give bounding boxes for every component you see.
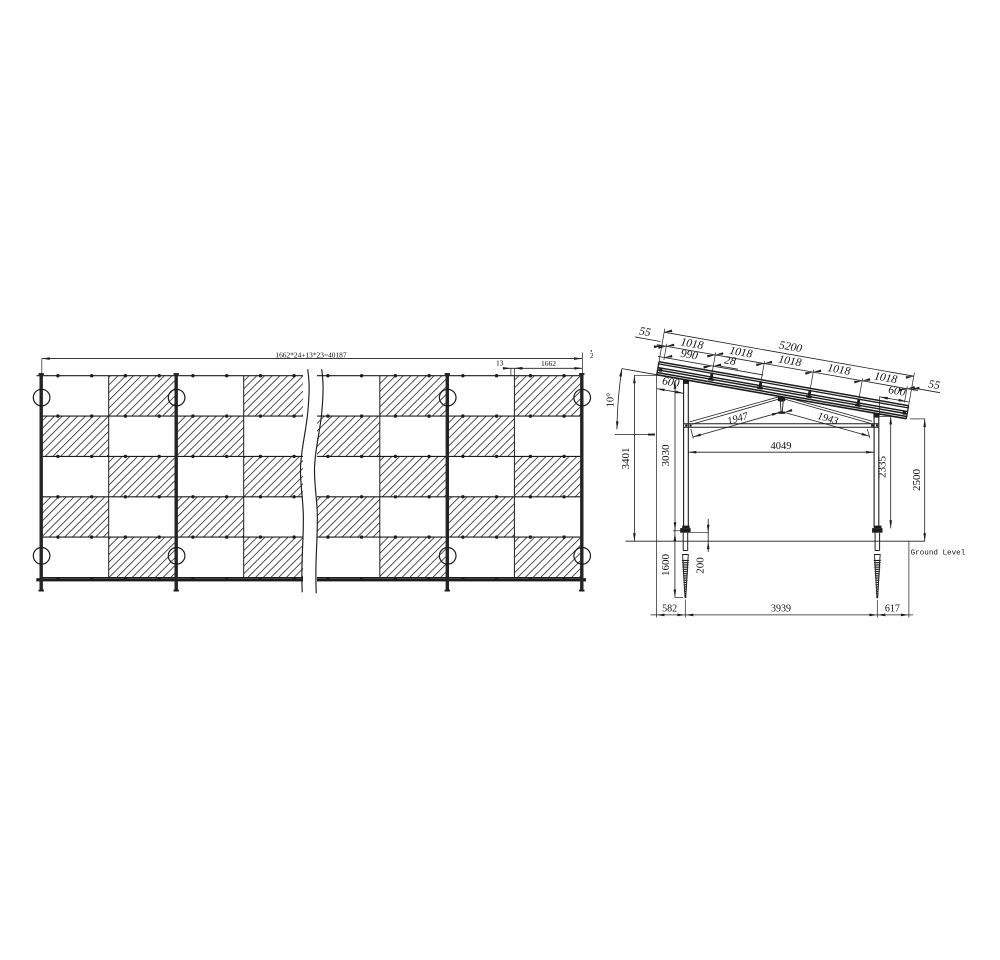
svg-text:55: 55 <box>927 378 941 392</box>
svg-text:1600: 1600 <box>660 554 672 577</box>
svg-text:1662*24+13*23=40187: 1662*24+13*23=40187 <box>275 350 346 359</box>
svg-text:2335: 2335 <box>877 456 889 479</box>
svg-text:582: 582 <box>662 604 677 615</box>
svg-text:617: 617 <box>885 604 900 615</box>
svg-text:3939: 3939 <box>771 604 791 615</box>
svg-text:2500: 2500 <box>911 469 923 492</box>
svg-text:4049: 4049 <box>771 441 792 452</box>
svg-text:200: 200 <box>694 557 706 574</box>
svg-text:Ground Level: Ground Level <box>911 550 966 558</box>
svg-text:28: 28 <box>723 354 737 368</box>
svg-text:1662: 1662 <box>541 359 556 368</box>
svg-text:55: 55 <box>638 325 652 339</box>
svg-text:10°: 10° <box>605 393 616 408</box>
svg-text:3401: 3401 <box>620 448 632 470</box>
svg-text:2: 2 <box>590 352 594 360</box>
svg-text:3030: 3030 <box>660 444 672 467</box>
svg-text:13: 13 <box>496 359 504 368</box>
